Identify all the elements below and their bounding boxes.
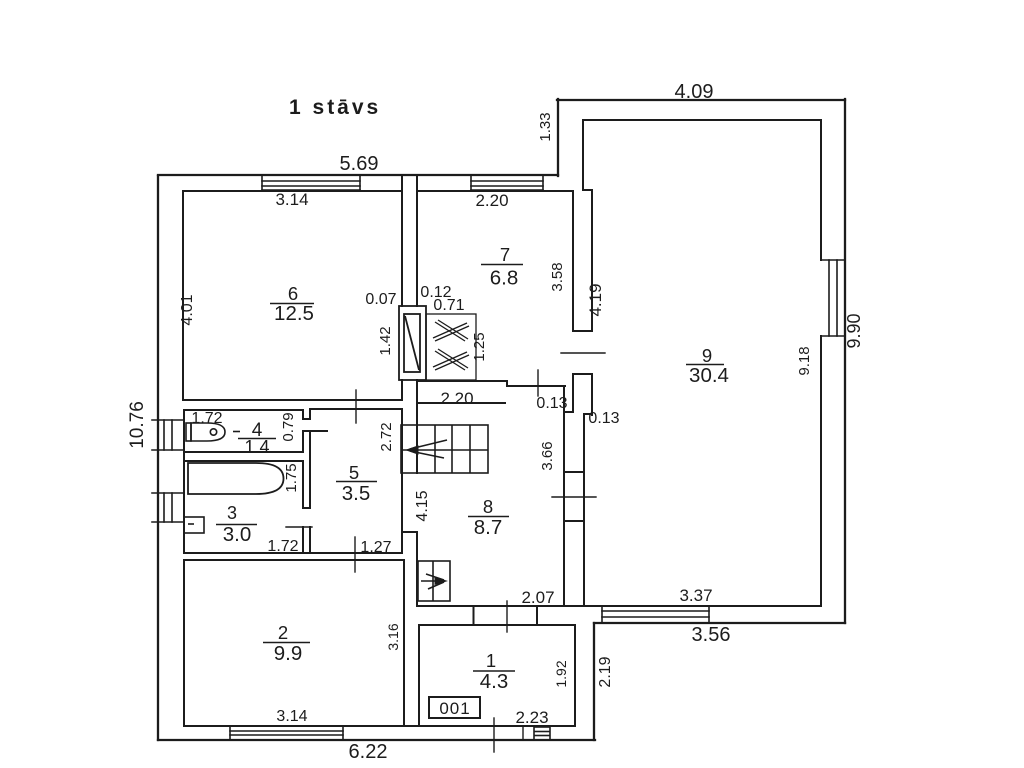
svg-text:1.25: 1.25 (471, 332, 488, 361)
svg-text:1.27: 1.27 (360, 539, 391, 556)
svg-text:3.16: 3.16 (385, 623, 401, 650)
svg-text:3.14: 3.14 (275, 190, 308, 209)
svg-text:6.8: 6.8 (490, 267, 519, 290)
svg-text:9.90: 9.90 (844, 313, 864, 348)
svg-text:30.4: 30.4 (689, 364, 729, 387)
svg-text:0.71: 0.71 (433, 297, 464, 314)
svg-text:3.37: 3.37 (679, 586, 712, 605)
svg-text:3.5: 3.5 (342, 482, 371, 505)
svg-text:1 stāvs: 1 stāvs (289, 96, 381, 119)
svg-text:1.75: 1.75 (283, 463, 300, 492)
svg-text:2.07: 2.07 (521, 588, 554, 607)
svg-text:9.9: 9.9 (274, 642, 303, 665)
svg-text:2.23: 2.23 (515, 708, 548, 727)
svg-text:2.72: 2.72 (378, 422, 395, 451)
svg-text:1.4: 1.4 (244, 437, 269, 457)
svg-text:3.58: 3.58 (549, 262, 566, 291)
svg-text:3.0: 3.0 (223, 523, 252, 546)
svg-text:5: 5 (349, 462, 359, 483)
svg-text:3: 3 (227, 503, 237, 523)
svg-text:3.66: 3.66 (539, 441, 556, 470)
svg-text:4.19: 4.19 (586, 283, 605, 316)
svg-text:4.3: 4.3 (480, 670, 509, 693)
svg-text:6.22: 6.22 (349, 741, 388, 763)
svg-text:7: 7 (500, 244, 510, 265)
svg-text:2.19: 2.19 (597, 656, 614, 687)
svg-text:4.01: 4.01 (179, 294, 196, 325)
svg-text:2.20: 2.20 (475, 191, 508, 210)
svg-text:1.42: 1.42 (377, 326, 394, 355)
svg-text:9.18: 9.18 (796, 346, 813, 375)
svg-text:5.69: 5.69 (340, 153, 379, 175)
svg-text:0.13: 0.13 (536, 395, 567, 412)
svg-text:6: 6 (288, 283, 298, 304)
svg-text:2.20: 2.20 (440, 389, 473, 408)
svg-text:1.72: 1.72 (267, 538, 298, 555)
svg-text:12.5: 12.5 (274, 302, 314, 325)
svg-text:9: 9 (702, 345, 712, 366)
svg-text:1.72: 1.72 (191, 410, 222, 427)
svg-text:1.33: 1.33 (537, 112, 554, 141)
svg-text:8: 8 (483, 496, 493, 517)
svg-text:10.76: 10.76 (127, 401, 148, 449)
svg-text:4.09: 4.09 (675, 81, 714, 103)
svg-text:3.56: 3.56 (692, 624, 731, 646)
svg-text:1.92: 1.92 (553, 660, 569, 687)
svg-text:2: 2 (278, 622, 288, 643)
svg-text:1: 1 (486, 650, 496, 671)
svg-text:4.15: 4.15 (414, 490, 431, 521)
svg-text:0.13: 0.13 (588, 410, 619, 427)
svg-text:0.79: 0.79 (280, 412, 297, 441)
svg-text:3.14: 3.14 (276, 708, 307, 725)
svg-text:8.7: 8.7 (474, 516, 503, 539)
svg-text:001: 001 (439, 699, 470, 718)
svg-text:0.07: 0.07 (365, 291, 396, 308)
